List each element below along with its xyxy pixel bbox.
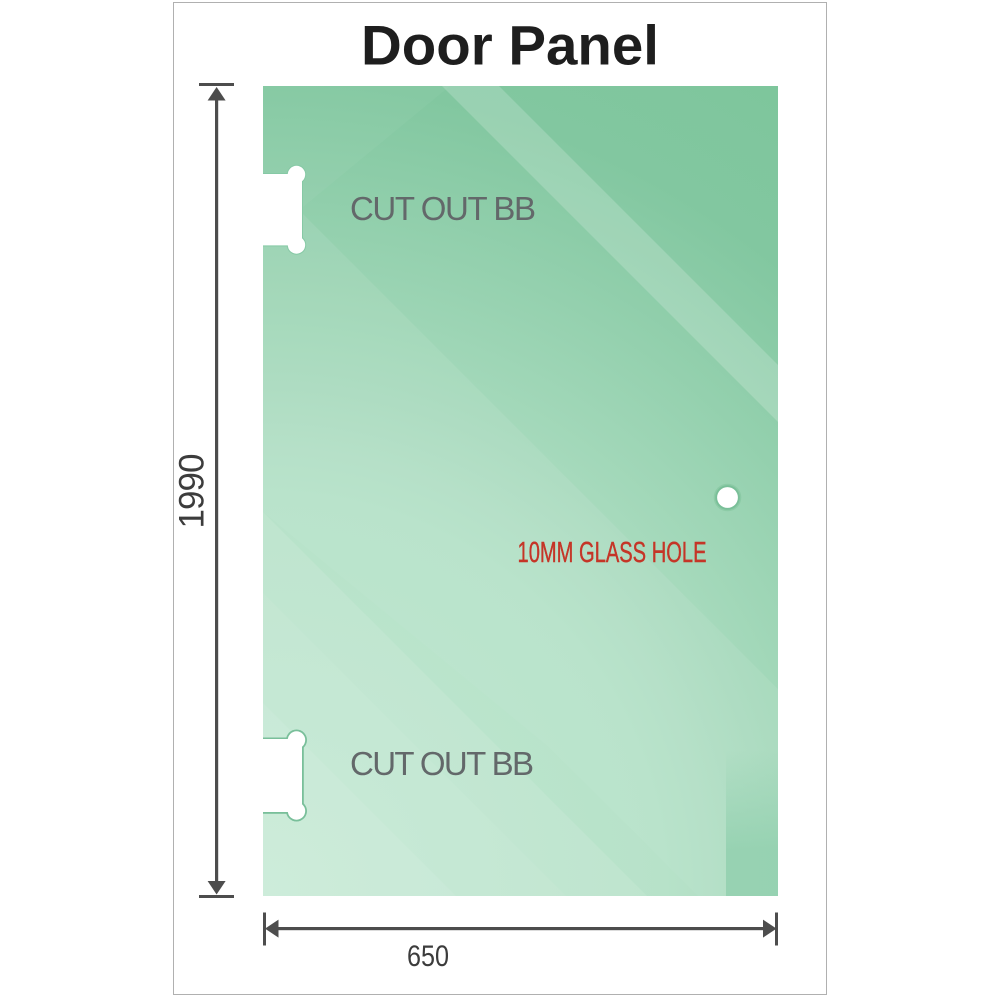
svg-text:10MM GLASS HOLE: 10MM GLASS HOLE [518, 537, 707, 569]
svg-text:650: 650 [407, 940, 449, 973]
svg-text:1990: 1990 [173, 454, 212, 529]
svg-text:CUT OUT BB: CUT OUT BB [350, 745, 534, 782]
svg-text:Door Panel: Door Panel [361, 14, 659, 77]
svg-text:CUT OUT BB: CUT OUT BB [350, 190, 536, 227]
